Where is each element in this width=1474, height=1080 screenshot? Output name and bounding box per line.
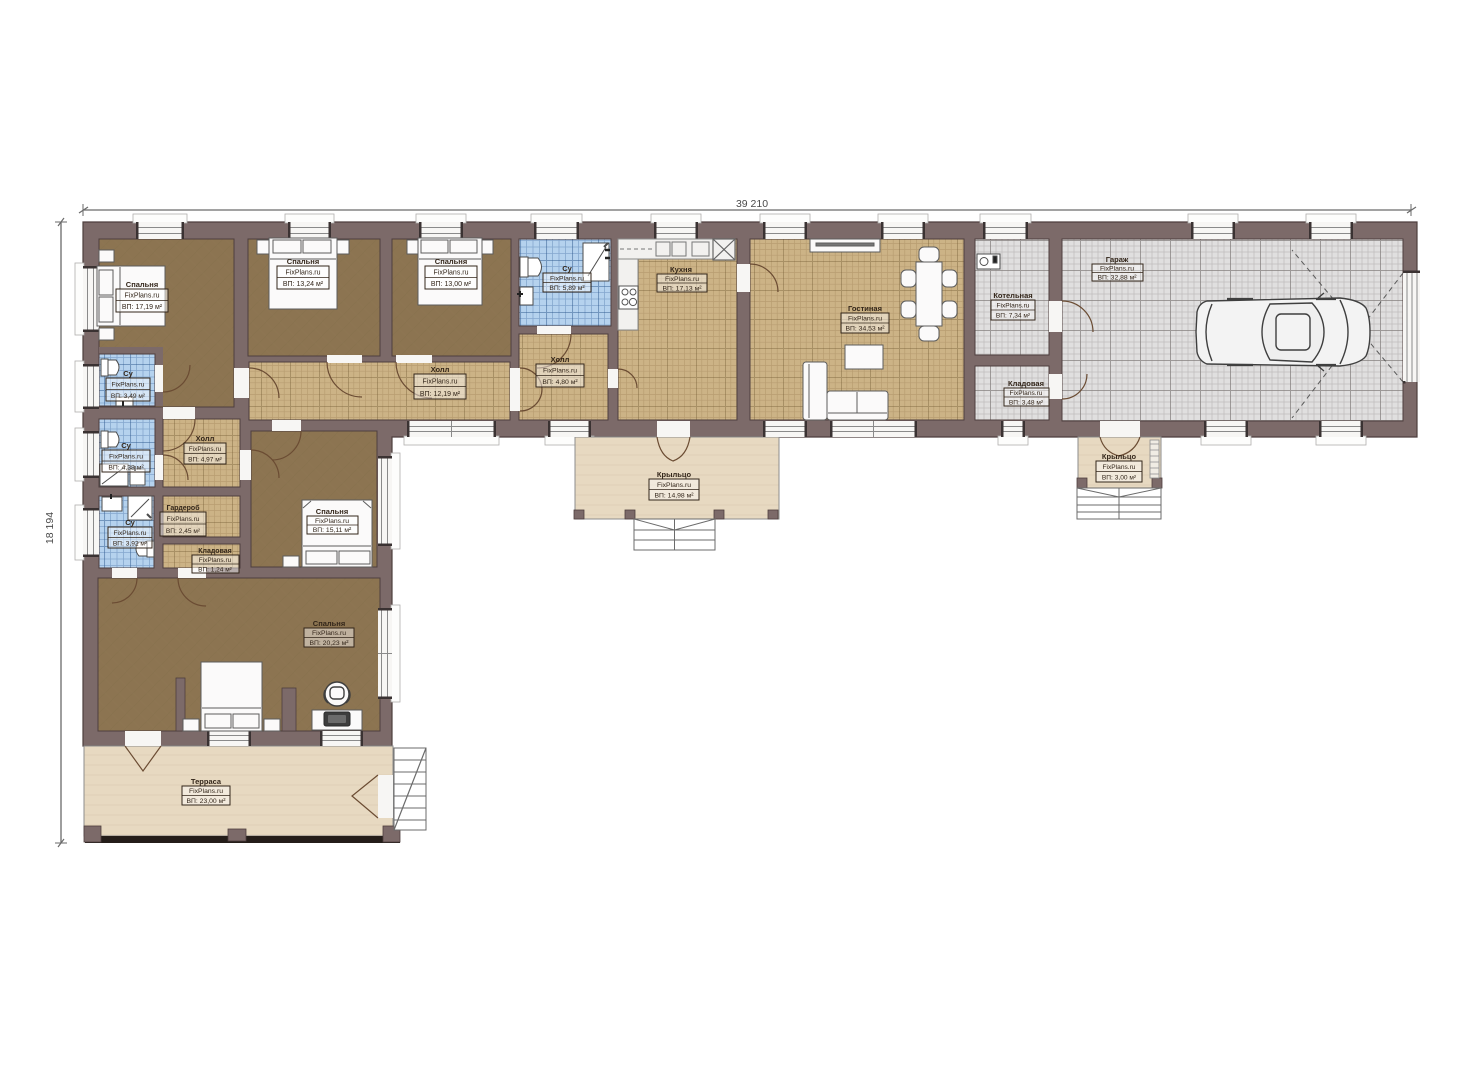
svg-text:FixPlans.ru: FixPlans.ru (285, 270, 320, 277)
svg-text:Спальня: Спальня (287, 257, 319, 266)
svg-text:ВП: 3,48 м²: ВП: 3,48 м² (1009, 400, 1044, 407)
svg-text:FixPlans.ru: FixPlans.ru (433, 270, 468, 277)
svg-text:Холл: Холл (551, 355, 570, 364)
svg-text:FixPlans.ru: FixPlans.ru (189, 446, 222, 453)
svg-text:Су: Су (121, 441, 131, 450)
svg-text:18 194: 18 194 (44, 512, 56, 544)
svg-text:ВП: 7,34 м²: ВП: 7,34 м² (996, 313, 1031, 320)
svg-text:Крыльцо: Крыльцо (1102, 452, 1137, 461)
svg-text:FixPlans.ru: FixPlans.ru (312, 630, 346, 637)
svg-text:FixPlans.ru: FixPlans.ru (167, 516, 200, 523)
svg-text:FixPlans.ru: FixPlans.ru (112, 382, 145, 389)
svg-text:ВП: 12,19 м²: ВП: 12,19 м² (420, 391, 461, 398)
svg-text:ВП: 3,92 м²: ВП: 3,92 м² (113, 541, 148, 548)
svg-text:ВП: 2,45 м²: ВП: 2,45 м² (166, 528, 201, 535)
svg-text:ВП: 4,38 м²: ВП: 4,38 м² (108, 465, 144, 472)
svg-text:ВП: 17,19 м²: ВП: 17,19 м² (122, 304, 163, 311)
svg-text:ВП: 20,23 м²: ВП: 20,23 м² (309, 640, 349, 647)
svg-text:Су: Су (123, 369, 133, 378)
svg-text:FixPlans.ru: FixPlans.ru (848, 316, 882, 323)
svg-text:FixPlans.ru: FixPlans.ru (543, 368, 577, 375)
svg-text:ВП: 5,89 м²: ВП: 5,89 м² (549, 285, 585, 292)
svg-text:ВП: 3,49 м²: ВП: 3,49 м² (111, 393, 146, 400)
svg-text:FixPlans.ru: FixPlans.ru (657, 482, 691, 489)
svg-text:FixPlans.ru: FixPlans.ru (189, 788, 223, 795)
svg-text:ВП: 4,80 м²: ВП: 4,80 м² (542, 379, 578, 386)
svg-text:FixPlans.ru: FixPlans.ru (1103, 464, 1136, 471)
svg-text:FixPlans.ru: FixPlans.ru (665, 276, 699, 283)
svg-text:Терраса: Терраса (191, 777, 222, 786)
svg-text:Кухня: Кухня (670, 265, 692, 274)
svg-text:ВП: 32,88 м²: ВП: 32,88 м² (1097, 275, 1137, 282)
svg-text:Гостиная: Гостиная (848, 304, 882, 313)
svg-text:FixPlans.ru: FixPlans.ru (997, 303, 1030, 310)
svg-text:Холл: Холл (196, 434, 215, 443)
svg-text:FixPlans.ru: FixPlans.ru (315, 518, 349, 525)
svg-text:ВП: 4,97 м²: ВП: 4,97 м² (188, 457, 223, 464)
svg-text:Спальня: Спальня (316, 507, 348, 516)
svg-text:FixPlans.ru: FixPlans.ru (422, 379, 457, 386)
svg-text:Холл: Холл (431, 365, 450, 374)
svg-text:Спальня: Спальня (126, 280, 158, 289)
svg-text:FixPlans.ru: FixPlans.ru (199, 557, 232, 564)
svg-text:Котельная: Котельная (993, 291, 1032, 300)
svg-text:Спальня: Спальня (313, 619, 345, 628)
svg-text:ВП: 13,00 м²: ВП: 13,00 м² (431, 281, 472, 288)
svg-text:Су: Су (125, 518, 135, 527)
svg-text:ВП: 1,24 м²: ВП: 1,24 м² (198, 567, 233, 574)
svg-text:ВП: 3,00 м²: ВП: 3,00 м² (1102, 475, 1137, 482)
svg-text:Крыльцо: Крыльцо (657, 470, 692, 479)
svg-text:Гардероб: Гардероб (166, 504, 200, 512)
svg-text:ВП: 34,53 м²: ВП: 34,53 м² (845, 326, 885, 333)
svg-text:Кладовая: Кладовая (1008, 379, 1044, 388)
svg-text:ВП: 17,13 м²: ВП: 17,13 м² (662, 286, 702, 293)
svg-text:Гараж: Гараж (1106, 255, 1129, 264)
svg-text:ВП: 23,00 м²: ВП: 23,00 м² (186, 798, 226, 805)
svg-text:Су: Су (562, 264, 572, 273)
svg-text:ВП: 13,24 м²: ВП: 13,24 м² (283, 281, 324, 288)
svg-text:39 210: 39 210 (736, 198, 768, 210)
svg-text:Спальня: Спальня (435, 257, 467, 266)
svg-text:FixPlans.ru: FixPlans.ru (1100, 266, 1134, 273)
svg-text:FixPlans.ru: FixPlans.ru (114, 530, 147, 537)
svg-text:ВП: 14,98 м²: ВП: 14,98 м² (654, 493, 694, 500)
svg-text:FixPlans.ru: FixPlans.ru (1010, 390, 1043, 397)
svg-text:FixPlans.ru: FixPlans.ru (550, 276, 584, 283)
svg-text:FixPlans.ru: FixPlans.ru (109, 454, 143, 461)
svg-text:FixPlans.ru: FixPlans.ru (124, 293, 159, 300)
svg-text:ВП: 15,11 м²: ВП: 15,11 м² (313, 527, 352, 534)
svg-text:Кладовая: Кладовая (198, 548, 232, 555)
